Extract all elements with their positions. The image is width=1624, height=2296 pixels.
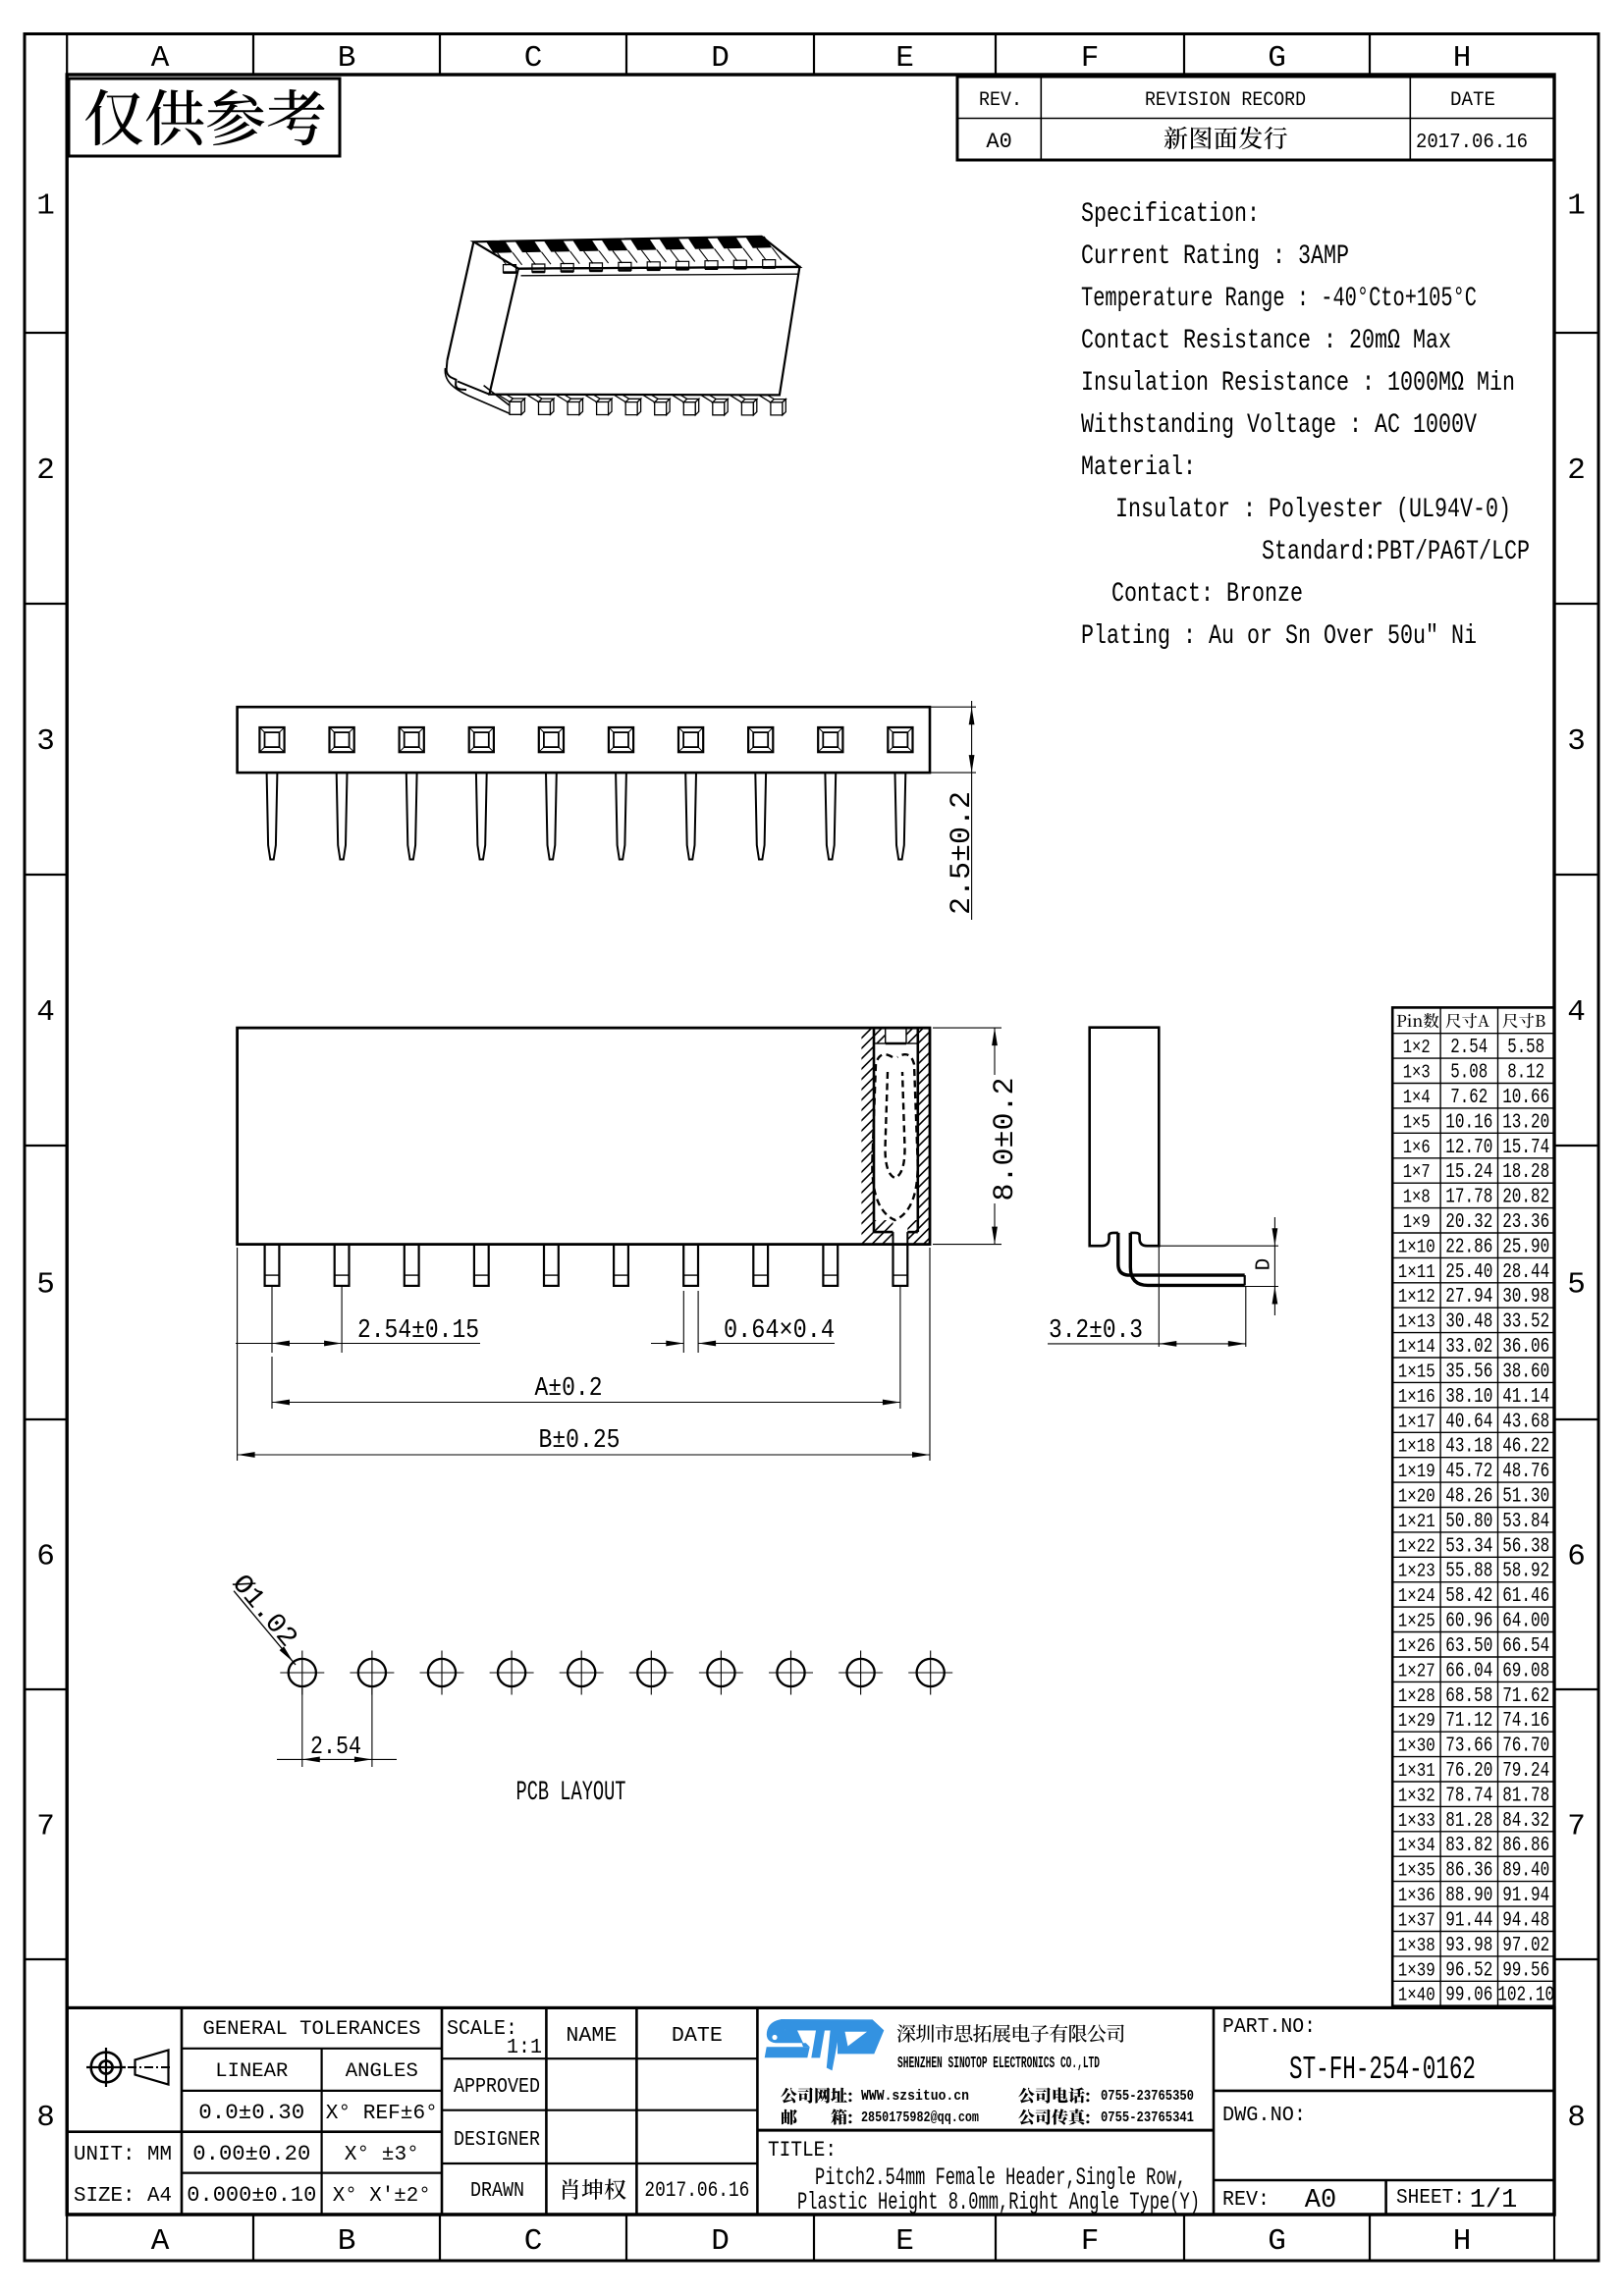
svg-text:45.72: 45.72	[1445, 1461, 1492, 1483]
svg-text:A: A	[151, 41, 170, 76]
svg-text:1×33: 1×33	[1398, 1810, 1435, 1832]
svg-text:1×38: 1×38	[1398, 1935, 1435, 1956]
svg-text:40.64: 40.64	[1445, 1411, 1492, 1433]
svg-text:0.64×0.4: 0.64×0.4	[724, 1316, 835, 1346]
svg-text:2017.06.16: 2017.06.16	[644, 2178, 749, 2203]
svg-text:0755-23765350: 0755-23765350	[1101, 2088, 1194, 2105]
svg-text:1×8: 1×8	[1403, 1187, 1431, 1208]
svg-text:5.58: 5.58	[1507, 1037, 1544, 1059]
svg-text:76.20: 76.20	[1445, 1760, 1492, 1783]
svg-text:1×24: 1×24	[1398, 1585, 1435, 1607]
svg-text:3: 3	[36, 724, 55, 759]
svg-text:1×21: 1×21	[1398, 1511, 1435, 1532]
svg-text:G: G	[1268, 2224, 1286, 2259]
svg-text:38.10: 38.10	[1445, 1386, 1492, 1409]
svg-text:1×34: 1×34	[1398, 1835, 1435, 1856]
svg-text:1×16: 1×16	[1398, 1386, 1435, 1408]
svg-text:1×20: 1×20	[1398, 1486, 1435, 1508]
svg-text:B: B	[338, 41, 356, 76]
svg-text:1×15: 1×15	[1398, 1361, 1435, 1382]
svg-text:APPROVED: APPROVED	[454, 2076, 540, 2099]
svg-text:91.94: 91.94	[1502, 1885, 1549, 1907]
svg-text:ST-FH-254-0162: ST-FH-254-0162	[1289, 2052, 1476, 2088]
svg-text:4: 4	[1567, 995, 1586, 1030]
svg-text:SHENZHEN SINOTOP ELECTRONICS C: SHENZHEN SINOTOP ELECTRONICS CO.,LTD	[897, 2055, 1100, 2073]
svg-text:1×2: 1×2	[1403, 1037, 1431, 1058]
svg-text:C: C	[524, 2224, 543, 2259]
svg-text:Material:: Material:	[1081, 453, 1196, 483]
svg-text:36.06: 36.06	[1502, 1336, 1549, 1359]
svg-text:43.18: 43.18	[1445, 1436, 1492, 1459]
svg-text:76.70: 76.70	[1502, 1735, 1549, 1758]
svg-text:Contact Resistance : 20mΩ Max: Contact Resistance : 20mΩ Max	[1081, 326, 1451, 356]
svg-text:Contact: Bronze: Contact: Bronze	[1111, 579, 1303, 610]
svg-text:23.36: 23.36	[1502, 1211, 1549, 1234]
svg-text:DRAWN: DRAWN	[470, 2180, 524, 2203]
svg-text:Plating : Au or Sn Over 50u" N: Plating : Au or Sn Over 50u" Ni	[1081, 621, 1477, 652]
svg-text:1×31: 1×31	[1398, 1760, 1435, 1782]
svg-text:89.40: 89.40	[1502, 1860, 1549, 1883]
svg-text:56.38: 56.38	[1502, 1535, 1549, 1558]
svg-text:8: 8	[36, 2101, 55, 2135]
svg-text:PART.NO:: PART.NO:	[1222, 2016, 1316, 2039]
svg-text:REV.: REV.	[979, 89, 1022, 112]
svg-text:69.08: 69.08	[1502, 1660, 1549, 1682]
svg-text:25.40: 25.40	[1445, 1261, 1492, 1284]
svg-text:5.08: 5.08	[1450, 1062, 1488, 1085]
svg-text:DATE: DATE	[672, 2025, 723, 2048]
svg-text:6: 6	[1567, 1540, 1586, 1575]
svg-text:81.28: 81.28	[1445, 1810, 1492, 1833]
svg-text:64.00: 64.00	[1502, 1611, 1549, 1633]
svg-text:1×9: 1×9	[1403, 1211, 1431, 1233]
svg-text:86.36: 86.36	[1445, 1860, 1492, 1883]
svg-text:84.32: 84.32	[1502, 1810, 1549, 1833]
svg-text:B: B	[338, 2224, 356, 2259]
svg-text:SIZE: A4: SIZE: A4	[74, 2185, 172, 2208]
svg-text:REV:: REV:	[1222, 2189, 1270, 2212]
svg-text:WWW.szsituo.cn: WWW.szsituo.cn	[861, 2088, 969, 2105]
svg-text:15.74: 15.74	[1502, 1137, 1549, 1159]
svg-text:1×30: 1×30	[1398, 1735, 1435, 1757]
svg-text:B±0.25: B±0.25	[539, 1426, 621, 1456]
svg-text:1×19: 1×19	[1398, 1461, 1435, 1482]
svg-text:53.84: 53.84	[1502, 1511, 1549, 1533]
svg-text:2850175982@qq.com: 2850175982@qq.com	[861, 2109, 979, 2126]
svg-text:7: 7	[1567, 1810, 1586, 1844]
svg-text:1×39: 1×39	[1398, 1959, 1435, 1981]
svg-text:2.5±0.2: 2.5±0.2	[946, 791, 979, 915]
svg-text:50.80: 50.80	[1445, 1511, 1492, 1533]
svg-text:30.98: 30.98	[1502, 1286, 1549, 1308]
svg-text:10.16: 10.16	[1445, 1111, 1492, 1134]
svg-text:Current Rating : 3AMP: Current Rating : 3AMP	[1081, 241, 1349, 272]
svg-text:71.12: 71.12	[1445, 1710, 1492, 1733]
svg-text:X° ±3°: X° ±3°	[345, 2144, 419, 2166]
svg-text:H: H	[1453, 41, 1472, 76]
svg-text:1×22: 1×22	[1398, 1535, 1435, 1557]
svg-text:1×6: 1×6	[1403, 1137, 1431, 1158]
svg-text:1×14: 1×14	[1398, 1336, 1435, 1358]
svg-text:TITLE:: TITLE:	[768, 2138, 837, 2163]
svg-text:Insulation Resistance : 1000MΩ: Insulation Resistance : 1000MΩ Min	[1081, 368, 1515, 399]
svg-text:2: 2	[36, 454, 55, 488]
svg-text:NAME: NAME	[566, 2025, 617, 2048]
svg-text:1×32: 1×32	[1398, 1785, 1435, 1806]
svg-text:38.60: 38.60	[1502, 1361, 1549, 1383]
svg-text:7.62: 7.62	[1450, 1087, 1488, 1109]
svg-text:A0: A0	[986, 130, 1011, 154]
svg-text:F: F	[1081, 41, 1100, 76]
svg-text:DATE: DATE	[1450, 89, 1495, 112]
svg-text:5: 5	[36, 1268, 55, 1303]
svg-text:8: 8	[1567, 2101, 1586, 2135]
svg-text:63.50: 63.50	[1445, 1635, 1492, 1658]
svg-text:1×11: 1×11	[1398, 1261, 1435, 1283]
svg-text:1×27: 1×27	[1398, 1660, 1435, 1682]
svg-text:1×18: 1×18	[1398, 1436, 1435, 1458]
svg-text:DESIGNER: DESIGNER	[454, 2129, 540, 2152]
svg-text:1×13: 1×13	[1398, 1311, 1435, 1333]
svg-text:102.10: 102.10	[1497, 1985, 1554, 2007]
svg-text:X° X'±2°: X° X'±2°	[333, 2185, 431, 2208]
svg-text:Specification:: Specification:	[1081, 199, 1260, 230]
svg-text:30.48: 30.48	[1445, 1311, 1492, 1334]
svg-text:53.34: 53.34	[1445, 1535, 1492, 1558]
svg-text:SHEET:: SHEET:	[1396, 2187, 1465, 2210]
svg-text:1×5: 1×5	[1403, 1111, 1431, 1133]
svg-text:83.82: 83.82	[1445, 1835, 1492, 1857]
svg-text:0.00±0.20: 0.00±0.20	[192, 2142, 310, 2166]
svg-text:58.42: 58.42	[1445, 1585, 1492, 1608]
svg-text:PCB LAYOUT: PCB LAYOUT	[516, 1778, 626, 1808]
svg-text:66.04: 66.04	[1445, 1660, 1492, 1682]
svg-text:22.86: 22.86	[1445, 1236, 1492, 1258]
svg-text:A: A	[151, 2224, 170, 2259]
svg-text:E: E	[895, 41, 914, 76]
svg-text:27.94: 27.94	[1445, 1286, 1492, 1308]
svg-text:58.92: 58.92	[1502, 1561, 1549, 1583]
svg-text:41.14: 41.14	[1502, 1386, 1549, 1409]
svg-text:1×10: 1×10	[1398, 1236, 1435, 1257]
svg-text:1/1: 1/1	[1470, 2186, 1518, 2216]
svg-text:1×28: 1×28	[1398, 1685, 1435, 1707]
svg-text:1×35: 1×35	[1398, 1860, 1435, 1882]
svg-text:48.76: 48.76	[1502, 1461, 1549, 1483]
svg-text:A0: A0	[1305, 2186, 1336, 2216]
svg-text:74.16: 74.16	[1502, 1710, 1549, 1733]
svg-text:E: E	[895, 2224, 914, 2259]
svg-text:H: H	[1453, 2224, 1472, 2259]
svg-text:1×23: 1×23	[1398, 1561, 1435, 1582]
svg-text:81.78: 81.78	[1502, 1785, 1549, 1807]
svg-text:13.20: 13.20	[1502, 1111, 1549, 1134]
svg-text:18.28: 18.28	[1502, 1161, 1549, 1184]
svg-text:D: D	[711, 41, 730, 76]
svg-text:73.66: 73.66	[1445, 1735, 1492, 1758]
svg-text:1×17: 1×17	[1398, 1411, 1435, 1432]
svg-text:35.56: 35.56	[1445, 1361, 1492, 1383]
svg-text:1×37: 1×37	[1398, 1910, 1435, 1932]
svg-text:97.02: 97.02	[1502, 1935, 1549, 1957]
svg-text:17.78: 17.78	[1445, 1187, 1492, 1209]
svg-text:1×40: 1×40	[1398, 1985, 1435, 2006]
svg-text:78.74: 78.74	[1445, 1785, 1492, 1807]
svg-text:G: G	[1268, 41, 1286, 76]
svg-text:86.86: 86.86	[1502, 1835, 1549, 1857]
svg-text:4: 4	[36, 995, 55, 1030]
svg-text:96.52: 96.52	[1445, 1959, 1492, 1982]
svg-text:15.24: 15.24	[1445, 1161, 1492, 1184]
svg-text:28.44: 28.44	[1502, 1261, 1549, 1284]
svg-text:1: 1	[36, 189, 55, 224]
svg-text:5: 5	[1567, 1268, 1586, 1303]
svg-text:33.02: 33.02	[1445, 1336, 1492, 1359]
svg-text:2.54: 2.54	[1450, 1037, 1488, 1059]
svg-text:Plastic Height 8.0mm,Right Ang: Plastic Height 8.0mm,Right Angle Type(Y)	[797, 2188, 1200, 2216]
svg-text:1×26: 1×26	[1398, 1635, 1435, 1657]
svg-text:6: 6	[36, 1540, 55, 1575]
svg-text:Insulator : Polyester (UL94V-0: Insulator : Polyester (UL94V-0)	[1115, 495, 1511, 525]
svg-text:33.52: 33.52	[1502, 1311, 1549, 1334]
svg-text:Withstanding Voltage : AC 1000: Withstanding Voltage : AC 1000V	[1081, 410, 1477, 441]
svg-text:68.58: 68.58	[1445, 1685, 1492, 1708]
svg-text:99.06: 99.06	[1445, 1985, 1492, 2007]
svg-text:10.66: 10.66	[1502, 1087, 1549, 1109]
svg-text:D: D	[1254, 1258, 1276, 1271]
svg-text:UNIT: MM: UNIT: MM	[74, 2144, 172, 2166]
svg-text:91.44: 91.44	[1445, 1910, 1492, 1933]
svg-text:X° REF±6°: X° REF±6°	[326, 2103, 438, 2125]
svg-text:1×12: 1×12	[1398, 1286, 1435, 1308]
svg-text:1: 1	[1567, 189, 1586, 224]
svg-text:1:1: 1:1	[507, 2037, 542, 2059]
svg-text:1×4: 1×4	[1403, 1087, 1431, 1108]
svg-text:8.0±0.2: 8.0±0.2	[989, 1078, 1022, 1201]
svg-text:3.2±0.3: 3.2±0.3	[1049, 1316, 1143, 1346]
svg-text:ANGLES: ANGLES	[346, 2060, 418, 2083]
svg-text:Standard:PBT/PA6T/LCP: Standard:PBT/PA6T/LCP	[1262, 537, 1530, 567]
svg-text:66.54: 66.54	[1502, 1635, 1549, 1658]
svg-text:DWG.NO:: DWG.NO:	[1222, 2105, 1306, 2127]
svg-text:2.54±0.15: 2.54±0.15	[357, 1316, 479, 1346]
svg-text:61.46: 61.46	[1502, 1585, 1549, 1608]
svg-text:1×29: 1×29	[1398, 1710, 1435, 1732]
svg-text:LINEAR: LINEAR	[215, 2060, 288, 2083]
svg-text:A±0.2: A±0.2	[535, 1374, 603, 1404]
svg-text:7: 7	[36, 1810, 55, 1844]
svg-text:88.90: 88.90	[1445, 1885, 1492, 1907]
svg-text:2: 2	[1567, 454, 1586, 488]
svg-text:8.12: 8.12	[1507, 1062, 1544, 1085]
svg-text:25.90: 25.90	[1502, 1236, 1549, 1258]
svg-text:C: C	[524, 41, 543, 76]
svg-text:Temperature Range : -40°Cto+10: Temperature Range : -40°Cto+105°C	[1081, 284, 1477, 314]
svg-text:12.70: 12.70	[1445, 1137, 1492, 1159]
svg-text:99.56: 99.56	[1502, 1959, 1549, 1982]
svg-text:0.0±0.30: 0.0±0.30	[198, 2101, 304, 2125]
svg-text:93.98: 93.98	[1445, 1935, 1492, 1957]
svg-text:3: 3	[1567, 724, 1586, 759]
svg-text:94.48: 94.48	[1502, 1910, 1549, 1933]
svg-text:79.24: 79.24	[1502, 1760, 1549, 1783]
svg-text:2.54: 2.54	[310, 1732, 361, 1761]
svg-text:1×3: 1×3	[1403, 1062, 1431, 1084]
svg-text:51.30: 51.30	[1502, 1486, 1549, 1509]
svg-text:60.96: 60.96	[1445, 1611, 1492, 1633]
svg-text:1×25: 1×25	[1398, 1611, 1435, 1632]
svg-text:55.88: 55.88	[1445, 1561, 1492, 1583]
svg-text:F: F	[1081, 2224, 1100, 2259]
svg-text:2017.06.16: 2017.06.16	[1416, 132, 1528, 154]
svg-text:20.32: 20.32	[1445, 1211, 1492, 1234]
svg-text:D: D	[711, 2224, 730, 2259]
svg-text:43.68: 43.68	[1502, 1411, 1549, 1433]
svg-text:0755-23765341: 0755-23765341	[1101, 2109, 1194, 2126]
svg-text:REVISION RECORD: REVISION RECORD	[1145, 89, 1306, 112]
svg-text:20.82: 20.82	[1502, 1187, 1549, 1209]
svg-text:71.62: 71.62	[1502, 1685, 1549, 1708]
svg-text:1×7: 1×7	[1403, 1161, 1431, 1183]
svg-text:0.000±0.10: 0.000±0.10	[187, 2183, 316, 2208]
svg-text:GENERAL TOLERANCES: GENERAL TOLERANCES	[203, 2018, 421, 2041]
svg-text:46.22: 46.22	[1502, 1436, 1549, 1459]
svg-text:48.26: 48.26	[1445, 1486, 1492, 1509]
svg-text:1×36: 1×36	[1398, 1885, 1435, 1906]
